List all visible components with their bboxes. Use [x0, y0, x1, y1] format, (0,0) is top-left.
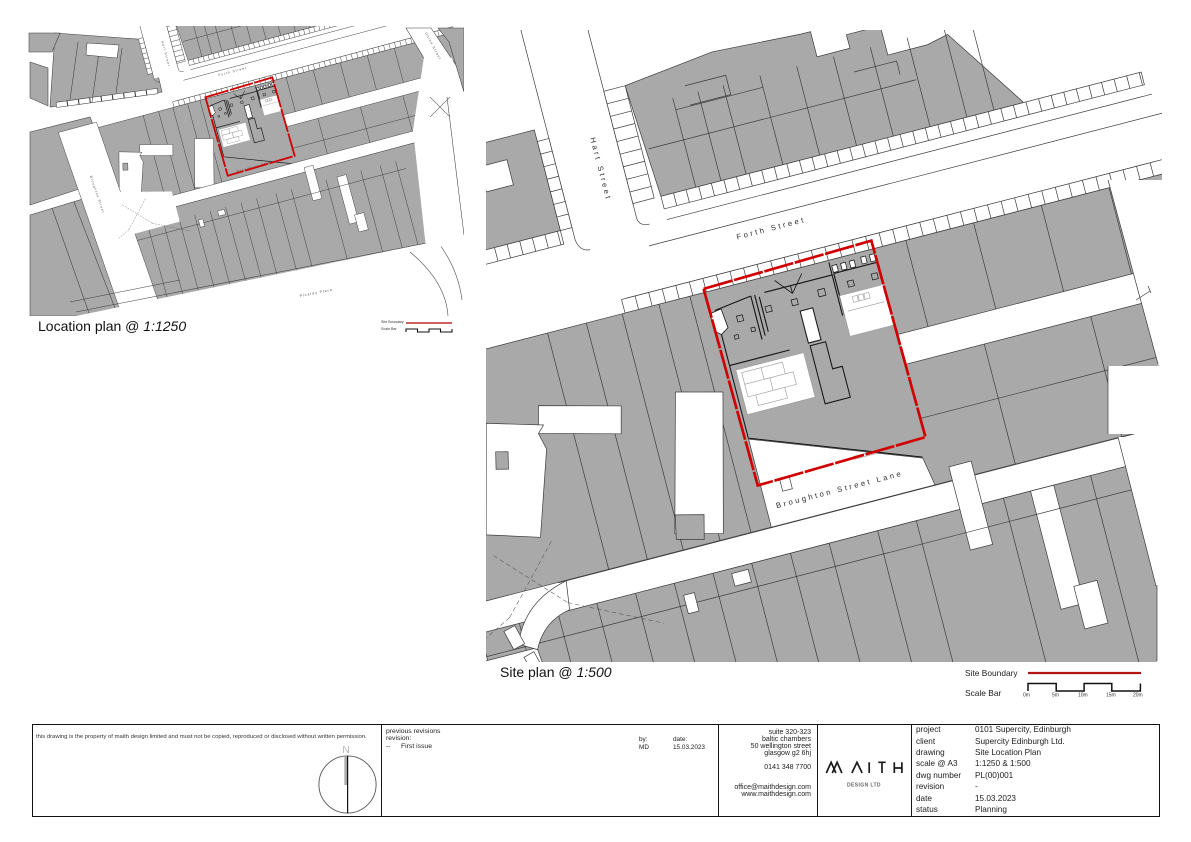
svg-text:Forth Street: Forth Street — [735, 215, 806, 242]
svg-text:15m: 15m — [1106, 693, 1116, 699]
svg-text:10m: 10m — [1078, 693, 1088, 699]
svg-text:DESIGN LTD: DESIGN LTD — [847, 783, 881, 789]
svg-text:Forth Street: Forth Street — [218, 66, 247, 77]
svg-text:20m: 20m — [1133, 693, 1143, 699]
svg-text:5m: 5m — [1052, 693, 1059, 699]
svg-text:0m: 0m — [1023, 693, 1030, 699]
svg-text:N: N — [342, 744, 350, 756]
